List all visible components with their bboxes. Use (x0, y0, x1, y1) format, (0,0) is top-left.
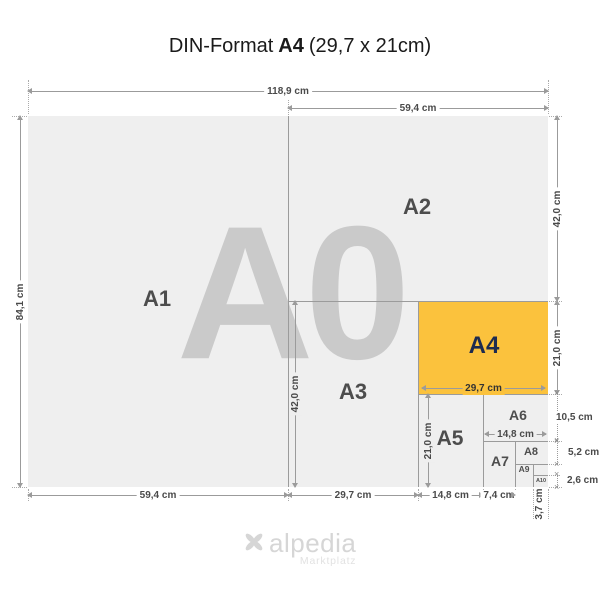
dim-height-a2-right: 42,0 cm (557, 116, 558, 301)
din-format-diagram: A0 A1A2A3A4A5A6A7A8A9A10118,9 cm59,4 cm8… (0, 0, 600, 600)
dim-width-a0-top: 118,9 cm (28, 91, 548, 92)
dim-label-width-a4-inner: 29,7 cm (462, 383, 505, 395)
dim-label-width-a1-bottom: 59,4 cm (137, 490, 180, 502)
dim-width-a6-inner: 14,8 cm (485, 434, 546, 435)
dim-label-height-a0-left: 84,1 cm (15, 280, 27, 323)
dim-label-width-a0-top: 118,9 cm (264, 86, 312, 98)
dim-label-width-a6-inner: 14,8 cm (494, 429, 537, 441)
dim-width-a1-bottom: 59,4 cm (28, 495, 288, 496)
dim-label-height-a3-inner: 42,0 cm (290, 373, 302, 416)
a0-watermark: A0 (177, 198, 402, 388)
dim-label-width-a10-bottom: 3,7 cm (534, 485, 546, 522)
dim-height-a5-inner: 21,0 cm (428, 394, 429, 487)
logo-name: alpedia (269, 531, 356, 555)
dim-label-height-a10-right: 2,6 cm (564, 475, 600, 487)
label-a3: A3 (339, 379, 367, 405)
dim-height-a10-right: 2,6 cm (557, 475, 558, 487)
dim-height-a3-inner: 42,0 cm (295, 301, 296, 487)
label-a10: A10 (536, 478, 546, 484)
dim-height-a6-right: 10,5 cm (557, 394, 558, 441)
dim-height-a4-right: 21,0 cm (557, 301, 558, 394)
label-a9: A9 (519, 464, 530, 474)
dim-height-a0-left: 84,1 cm (20, 116, 21, 487)
extension-line (548, 489, 549, 519)
extension-line (28, 80, 29, 114)
alpedia-flower-icon (243, 531, 265, 553)
dim-width-a5-bottom: 14,8 cm (418, 495, 483, 496)
dim-label-width-a3-bottom: 29,7 cm (332, 490, 375, 502)
dim-height-a8-right: 5,2 cm (557, 441, 558, 464)
dim-label-width-a7-bottom: 7,4 cm (480, 490, 517, 502)
page: DIN-Format A4 (29,7 x 21cm) A0 A1A2A3A4A… (0, 0, 600, 600)
label-a4: A4 (469, 332, 500, 360)
label-a5: A5 (437, 427, 464, 451)
logo-text: alpedia Marktplatz (269, 531, 356, 567)
dim-label-width-a5-bottom: 14,8 cm (429, 490, 472, 502)
dim-label-height-a2-right: 42,0 cm (552, 187, 564, 230)
dim-label-height-a6-right: 10,5 cm (553, 412, 596, 424)
dim-width-a3-bottom: 29,7 cm (288, 495, 418, 496)
alpedia-logo: alpedia Marktplatz (243, 531, 356, 567)
dim-label-height-a5-inner: 21,0 cm (423, 419, 435, 462)
label-a1: A1 (143, 286, 171, 312)
dim-width-a2-top: 59,4 cm (288, 108, 548, 109)
logo-subtitle: Marktplatz (300, 555, 356, 567)
dim-label-width-a2-top: 59,4 cm (397, 103, 440, 115)
label-a2: A2 (403, 194, 431, 220)
dim-width-a4-inner: 29,7 cm (422, 388, 545, 389)
label-a6: A6 (509, 407, 527, 423)
label-a7: A7 (491, 453, 509, 469)
dim-label-height-a4-right: 21,0 cm (552, 326, 564, 369)
dim-width-a7-bottom: 7,4 cm (483, 495, 515, 496)
dim-label-height-a8-right: 5,2 cm (565, 447, 600, 459)
divider-line (533, 475, 548, 476)
label-a8: A8 (524, 446, 538, 458)
